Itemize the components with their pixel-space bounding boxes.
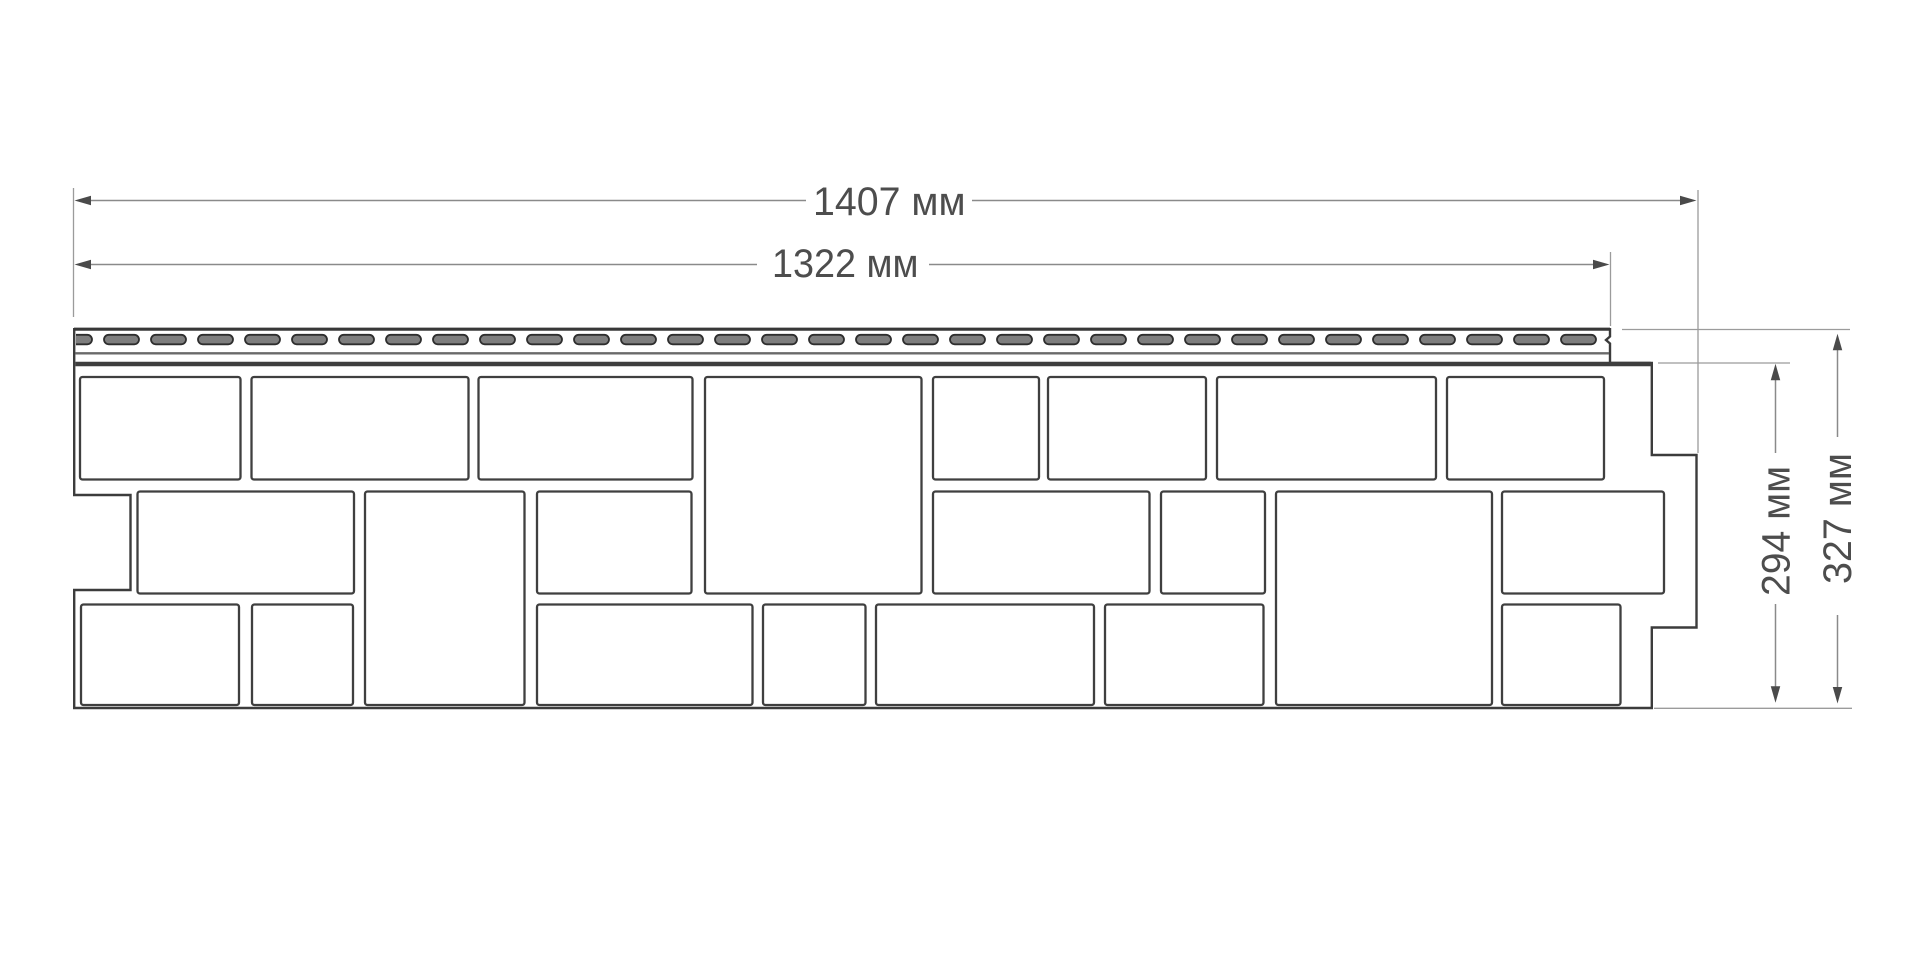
svg-text:1322 мм: 1322 мм	[772, 242, 919, 286]
svg-text:294 мм: 294 мм	[1755, 466, 1799, 596]
svg-text:327 мм: 327 мм	[1816, 453, 1860, 584]
svg-text:1407 мм: 1407 мм	[813, 180, 966, 224]
